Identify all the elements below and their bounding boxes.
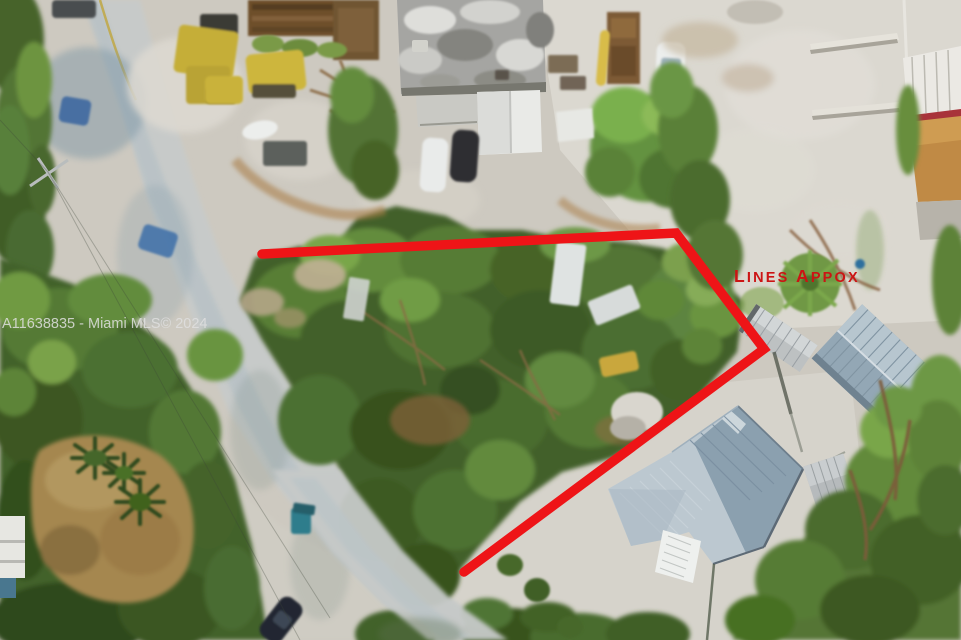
svg-text:A11638835 - Miami MLS© 2024: A11638835 - Miami MLS© 2024 bbox=[2, 316, 207, 332]
